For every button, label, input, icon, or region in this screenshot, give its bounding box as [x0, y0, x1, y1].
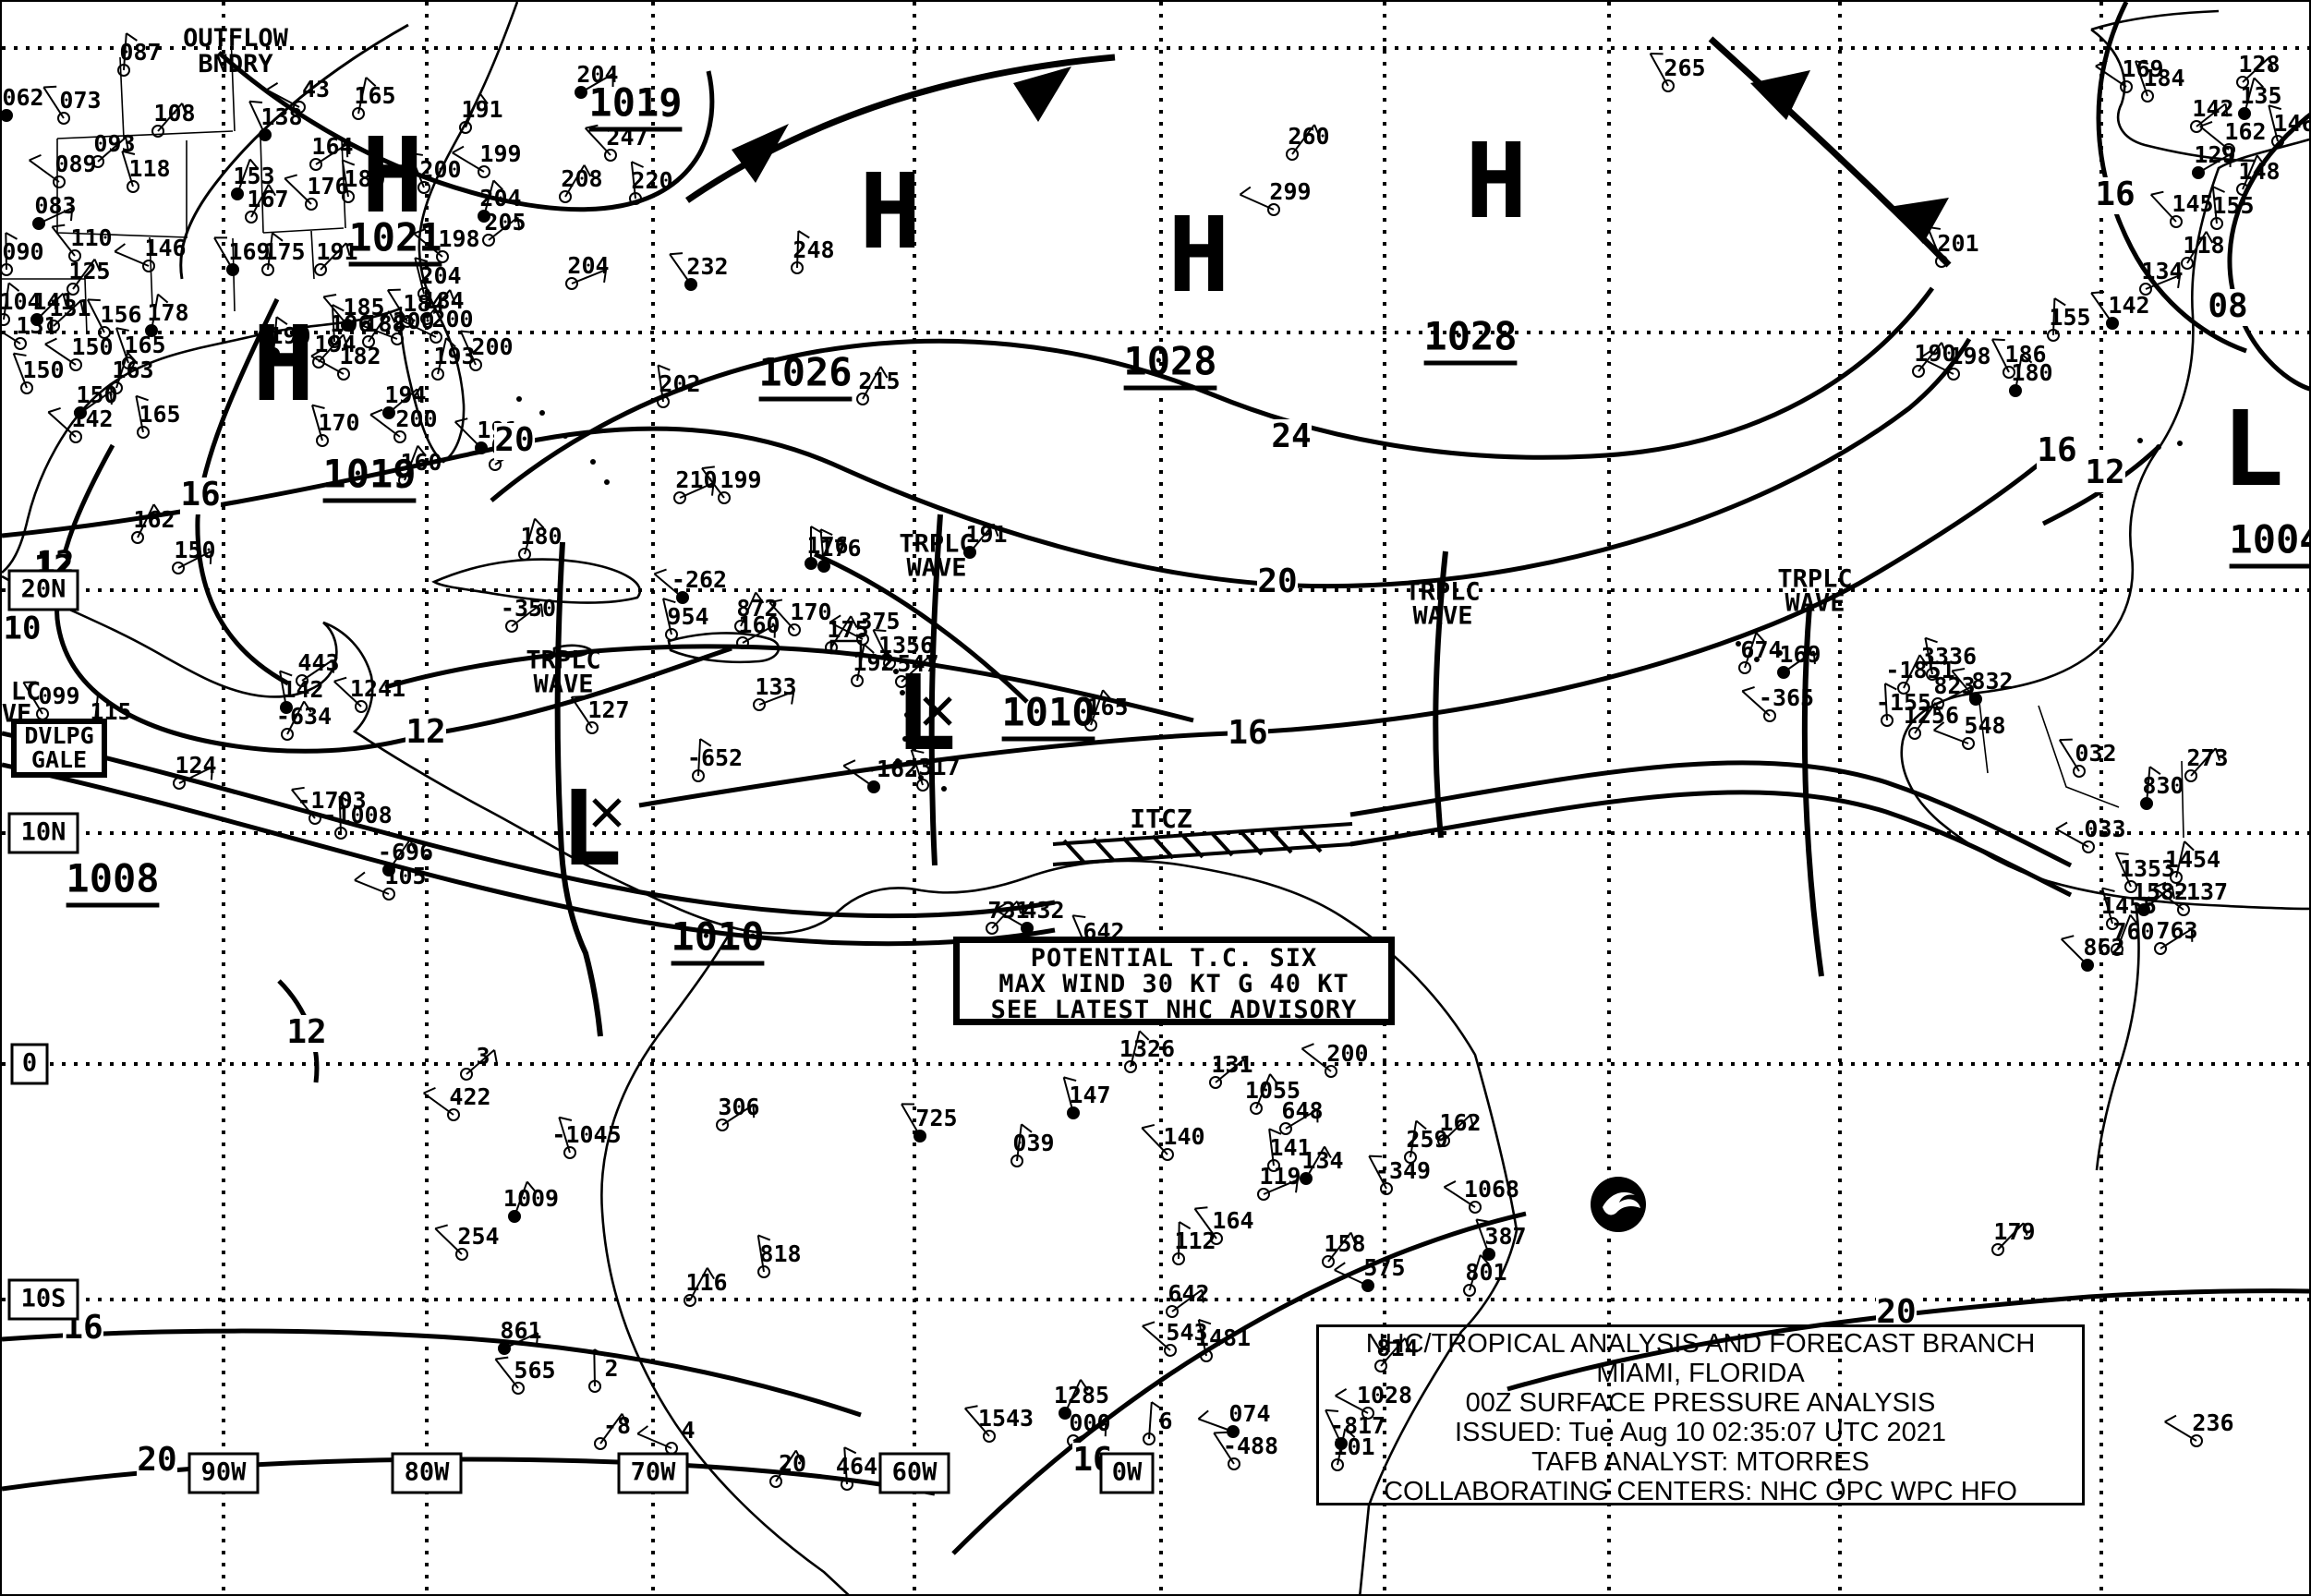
station-value: 134: [2141, 258, 2183, 284]
station-value: 1068: [1464, 1176, 1519, 1203]
tropical-wave-label: WAVE: [906, 554, 966, 583]
station-value: 565: [514, 1357, 555, 1384]
wind-barb-tick: [116, 328, 129, 331]
wind-barb-tick: [1072, 915, 1085, 917]
isobar-label: 16: [180, 476, 220, 514]
wind-barb-shaft: [355, 880, 389, 894]
station-value: 158: [1324, 1230, 1365, 1257]
station-value: 248: [793, 236, 834, 263]
credit-line: TAFB ANALYST: MTORRES: [1319, 1447, 2082, 1477]
station-value: 146: [2273, 110, 2311, 137]
wind-barb-tick: [1143, 1322, 1155, 1325]
credit-line: 00Z SURFACE PRESSURE ANALYSIS: [1319, 1388, 2082, 1418]
station-value: -349: [1375, 1157, 1431, 1184]
wind-barb-tick: [334, 678, 346, 682]
wind-barb-tick: [1814, 651, 1815, 664]
wind-barb-tick: [284, 175, 296, 178]
central-pressure-value: 1019: [322, 452, 416, 497]
station-value: 862: [2083, 934, 2124, 961]
central-pressure-value: 1019: [588, 80, 682, 126]
station-value: 089: [54, 151, 96, 177]
longitude-label: 70W: [631, 1458, 677, 1487]
outflow-boundary-label: OUTFLOW BNDRY: [148, 26, 323, 78]
longitude-label: 90W: [201, 1458, 248, 1487]
wind-barb-tick: [1269, 1129, 1281, 1134]
station-value: 167: [247, 186, 288, 212]
station-value: 43: [302, 76, 330, 103]
wind-barb-shaft: [1198, 1419, 1233, 1432]
station-value: 215: [858, 368, 900, 394]
station-value: 162: [1439, 1109, 1481, 1136]
station-value: 204: [567, 252, 609, 279]
wind-barb-tick: [843, 760, 855, 766]
wind-barb-shaft: [340, 796, 341, 833]
station-value: 725: [915, 1105, 957, 1131]
edge-label: 10: [4, 611, 42, 647]
wind-barb-tick: [280, 671, 292, 676]
wind-barb-tick: [2091, 292, 2104, 293]
front-triangle: [1750, 70, 1810, 120]
isobar-label: 16: [1228, 714, 1267, 752]
wind-barb-tick: [136, 396, 148, 401]
station-value: 142: [71, 405, 113, 432]
station-value: 832: [1971, 668, 2013, 695]
pacific-coast: [601, 930, 852, 1596]
potential-tc-advisory-box: POTENTIAL T.C. SIX MAX WIND 30 KT G 40 K…: [953, 937, 1395, 1025]
station-value: 150: [22, 357, 64, 383]
wind-barb-tick: [115, 244, 125, 251]
wind-barb-tick: [1476, 1219, 1489, 1222]
credit-line: ISSUED: Tue Aug 10 02:35:07 UTC 2021: [1319, 1418, 2082, 1447]
station-value: 200: [419, 156, 461, 183]
itcz-symbol: [1053, 824, 1352, 864]
issuing-office-credit-box: NHC/TROPICAL ANALYSIS AND FORECAST BRANC…: [1316, 1324, 2085, 1505]
wind-barb-tick: [2151, 192, 2164, 195]
wind-barb-tick: [1240, 187, 1250, 195]
station-value: 128: [2238, 51, 2280, 78]
wind-barb-tick: [1444, 1181, 1456, 1187]
station-value: -365: [1759, 684, 1814, 711]
wind-barb-tick: [424, 1088, 436, 1094]
wind-barb-tick: [435, 1225, 447, 1228]
station-value: 033: [2084, 816, 2125, 842]
longitude-label: 80W: [405, 1458, 451, 1487]
low-pressure-symbol: L: [2221, 390, 2283, 510]
station-value: 165: [139, 401, 180, 428]
station-value: 133: [755, 673, 796, 700]
station-value: 147: [1069, 1082, 1110, 1108]
station-value: 191: [461, 96, 502, 123]
noaa-logo: [1591, 1177, 1646, 1232]
high-pressure-symbol: H: [252, 305, 314, 425]
wind-barb-tick: [2102, 889, 2115, 891]
station-value: 954: [667, 603, 708, 630]
wind-barb-shaft: [2053, 298, 2054, 335]
station-value: 184: [403, 290, 444, 317]
itcz-label: ITCZ: [1130, 804, 1192, 834]
longitude-label: 60W: [892, 1458, 938, 1487]
station-value: 156: [100, 301, 141, 328]
station-value: -488: [1223, 1433, 1278, 1459]
islands: [516, 396, 2183, 792]
gale-line: GALE: [17, 748, 102, 772]
wind-barb-tick: [658, 365, 670, 369]
station-value: 1241: [350, 675, 405, 702]
tropical-wave-label: WAVE: [1412, 602, 1472, 631]
station-value: 116: [685, 1269, 727, 1296]
station-value: 201: [1937, 230, 1978, 257]
station-value: -634: [276, 703, 332, 730]
wind-barb-tick: [43, 87, 56, 88]
station-value: 142: [2108, 292, 2149, 319]
latitude-label: 10S: [21, 1285, 67, 1313]
isobar-label: 20: [137, 1441, 176, 1479]
station-value: 074: [1228, 1400, 1270, 1427]
station-value: 1481: [1195, 1324, 1251, 1351]
wind-barb-tick: [111, 392, 112, 405]
wind-barb-tick: [267, 83, 278, 90]
station-value: 260: [1288, 123, 1329, 150]
wind-barb-tick: [323, 295, 336, 296]
gale-line: DVLPG: [17, 724, 102, 748]
latitude-label: 0: [22, 1049, 37, 1078]
station-value: 148: [2238, 158, 2280, 185]
wind-barb-tick: [559, 1118, 572, 1120]
station-value: 220: [631, 167, 672, 194]
station-value: 125: [68, 258, 110, 284]
wind-barb-tick: [370, 410, 382, 415]
station-value: 200: [1326, 1040, 1368, 1067]
central-pressure-value: 1028: [1123, 339, 1216, 384]
station-value: 062: [2, 84, 43, 111]
station-value: 138: [260, 103, 302, 130]
station-value: 20: [779, 1450, 806, 1477]
outflow-line: BNDRY: [148, 52, 323, 78]
wind-barb-tick: [48, 408, 60, 412]
high-pressure-symbol: H: [1168, 196, 1229, 316]
isobar-label: 16: [2095, 175, 2135, 213]
station-value: 2: [604, 1355, 618, 1382]
station-value: 150: [71, 333, 113, 360]
station-value: 4: [681, 1417, 695, 1444]
wind-barb-tick: [52, 225, 65, 227]
tropical-wave-label: WAVE: [1785, 589, 1845, 618]
wind-barb-tick: [1742, 687, 1754, 691]
station-value: 198: [438, 225, 479, 252]
station-value: 202: [659, 370, 700, 397]
wind-barb-tick: [1194, 1207, 1207, 1208]
station-value: 131: [1211, 1051, 1252, 1078]
station-value: 642: [1168, 1280, 1209, 1307]
station-value: 1543: [978, 1405, 1034, 1432]
station-value: 155: [2212, 192, 2254, 219]
wind-barb-tick: [249, 102, 262, 103]
wind-barb-tick: [355, 872, 365, 880]
station-value: 176: [819, 535, 861, 562]
outflow-line: OUTFLOW: [148, 26, 323, 52]
wind-barb-tick: [1335, 1263, 1346, 1270]
isobar-label: 24: [1271, 417, 1311, 455]
wind-barb-tick: [754, 1105, 755, 1118]
central-pressure-value: 1008: [66, 856, 159, 901]
station-value: 194: [384, 381, 426, 408]
high-pressure-symbol: H: [1465, 122, 1527, 242]
central-pressure-value: 1010: [1001, 690, 1095, 735]
isobar-label: 20: [494, 421, 534, 459]
station-value: 090: [2, 238, 43, 265]
wind-barb-tick: [537, 1333, 538, 1346]
isobar-label: 08: [2208, 287, 2247, 325]
surface-analysis-chart: 0620730871084313816509308911815316417618…: [0, 0, 2311, 1596]
station-value: 164: [1212, 1207, 1253, 1234]
wind-barb-tick: [873, 630, 886, 631]
wind-barb-tick: [2056, 822, 2067, 828]
wind-barb-tick: [1992, 339, 2005, 340]
station-value: 299: [1269, 178, 1311, 205]
station-value: 387: [1484, 1223, 1526, 1250]
station-value: 818: [759, 1240, 801, 1267]
longitude-label: 0W: [1112, 1458, 1143, 1487]
wind-barb-tick: [1925, 638, 1937, 643]
wind-barb-tick: [30, 155, 42, 161]
central-pressure-value: 1026: [758, 350, 852, 395]
station-value: 200: [471, 333, 513, 360]
wind-barb-tick: [45, 339, 57, 345]
wind-barb-shaft: [1934, 731, 1968, 744]
station-value: 127: [587, 696, 629, 723]
wind-barb-tick: [1198, 1410, 1208, 1419]
station-value: -1008: [322, 802, 392, 828]
low-pressure-symbol: L: [894, 654, 956, 774]
station-value: 232: [686, 253, 728, 280]
front-triangle: [732, 124, 789, 183]
station-value: 6: [1158, 1408, 1172, 1434]
station-value: 199: [479, 140, 521, 167]
station-value: 1256: [1904, 702, 1959, 729]
station-value: 141: [32, 288, 74, 315]
central-pressure-value: 1021: [348, 215, 442, 260]
station-value: 200: [395, 405, 437, 432]
credit-line: COLLABORATING CENTERS: NHC OPC WPC HFO: [1319, 1477, 2082, 1506]
wind-barb-tick: [1152, 1402, 1163, 1409]
wind-barb-tick: [1369, 1156, 1382, 1157]
isobar-label: 16: [2037, 431, 2076, 469]
station-value: 182: [339, 343, 381, 369]
wind-barb-tick: [2165, 1416, 2176, 1422]
station-value: 1285: [1054, 1382, 1109, 1409]
central-pressure-value: 1028: [1423, 314, 1517, 359]
wind-barb-tick: [637, 1426, 647, 1433]
wind-barb-tick: [495, 1358, 508, 1360]
latitude-label: 10N: [21, 818, 67, 847]
wind-barb-tick: [71, 208, 72, 221]
station-value: 205: [484, 209, 526, 236]
wind-barb-tick: [2116, 852, 2129, 854]
latitude-label: 20N: [21, 575, 67, 604]
wind-barb-tick: [14, 354, 27, 356]
wind-barb-tick: [212, 767, 212, 780]
wind-barb-tick: [758, 1235, 770, 1239]
station-value: 119: [1259, 1163, 1301, 1190]
isobar-label: 20: [1257, 562, 1297, 600]
station-value: 548: [1964, 712, 2005, 739]
wind-barb-tick: [343, 160, 355, 164]
front-triangle: [1013, 66, 1071, 122]
station-value: 112: [1174, 1227, 1216, 1254]
isobar-label: 12: [2085, 453, 2124, 491]
station-value: 432: [1022, 897, 1064, 924]
wind-barb-tick: [1142, 1125, 1155, 1128]
station-value: -696: [378, 839, 433, 865]
station-value: 198: [1949, 343, 1990, 369]
station-value: 170: [318, 409, 359, 436]
station-value: 099: [38, 683, 79, 709]
station-value: 155: [2049, 304, 2090, 331]
station-value: 422: [449, 1083, 490, 1110]
station-value: -350: [501, 595, 556, 622]
wind-barb-shaft: [594, 1349, 595, 1386]
advisory-line: SEE LATEST NHC ADVISORY: [960, 997, 1388, 1023]
wind-barb-shaft: [1179, 1222, 1180, 1259]
wind-barb-shaft: [797, 231, 798, 268]
station-value: 254: [457, 1223, 499, 1250]
high-pressure-symbol: H: [859, 152, 921, 272]
station-value: 575: [1363, 1254, 1405, 1281]
wind-barb-tick: [455, 418, 468, 422]
isobar-label: 12: [286, 1013, 326, 1051]
wind-barb-tick: [347, 144, 348, 157]
wind-barb-tick: [1214, 1433, 1227, 1433]
wind-barb-tick: [1301, 1044, 1313, 1048]
station-value: 184: [2143, 65, 2184, 91]
wind-barb-tick: [1064, 1077, 1077, 1081]
station-value: -652: [687, 744, 743, 771]
station-circle: [2, 110, 12, 121]
wind-barb-tick: [670, 253, 683, 254]
central-pressure-value: 1004: [2229, 517, 2311, 562]
wind-barb-tick: [1202, 1289, 1203, 1302]
wind-barb-tick: [453, 147, 464, 153]
station-value: 110: [70, 224, 112, 251]
station-value: 131: [16, 312, 57, 339]
station-value: 118: [128, 155, 170, 182]
wind-barb-shaft: [6, 233, 6, 270]
station-value: 073: [59, 87, 101, 114]
central-pressure-value: 1010: [671, 914, 764, 960]
station-value: -137: [2172, 878, 2228, 905]
developing-gale-box: DVLPG GALE: [11, 719, 107, 778]
station-value: 145: [2172, 190, 2213, 217]
isobar-label: 12: [405, 713, 445, 751]
wind-barb-tick: [211, 551, 212, 564]
station-value: 265: [1664, 54, 1705, 81]
wind-barb-tick: [2062, 936, 2075, 939]
station-value: 236: [2192, 1409, 2233, 1436]
station-value: 1009: [503, 1185, 559, 1212]
station-value: 199: [720, 466, 761, 493]
station-value: -262: [672, 566, 727, 593]
advisory-line: POTENTIAL T.C. SIX: [960, 946, 1388, 972]
credit-line: NHC/TROPICAL ANALYSIS AND FORECAST BRANC…: [1319, 1329, 2082, 1359]
low-pressure-symbol: L: [560, 769, 622, 889]
advisory-line: MAX WIND 30 KT G 40 KT: [960, 972, 1388, 997]
wind-barb-tick: [663, 598, 675, 602]
wind-barb-tick: [654, 570, 666, 574]
station-value: 170: [790, 598, 831, 625]
wind-barb-tick: [965, 1406, 978, 1409]
credit-line: MIAMI, FLORIDA: [1319, 1359, 2082, 1388]
station-value: 140: [1163, 1123, 1204, 1150]
tropical-wave-label: WAVE: [533, 671, 593, 699]
station-value: 105: [384, 863, 426, 889]
wind-barb-tick: [333, 660, 333, 673]
wind-barb-tick: [1106, 1423, 1107, 1436]
station-circle: [2, 314, 9, 325]
station-value: 142: [282, 676, 323, 703]
station-value: 146: [144, 235, 186, 261]
wind-barb-tick: [494, 1050, 497, 1063]
station-value: 032: [2075, 740, 2116, 767]
station-value: 162: [133, 506, 175, 533]
